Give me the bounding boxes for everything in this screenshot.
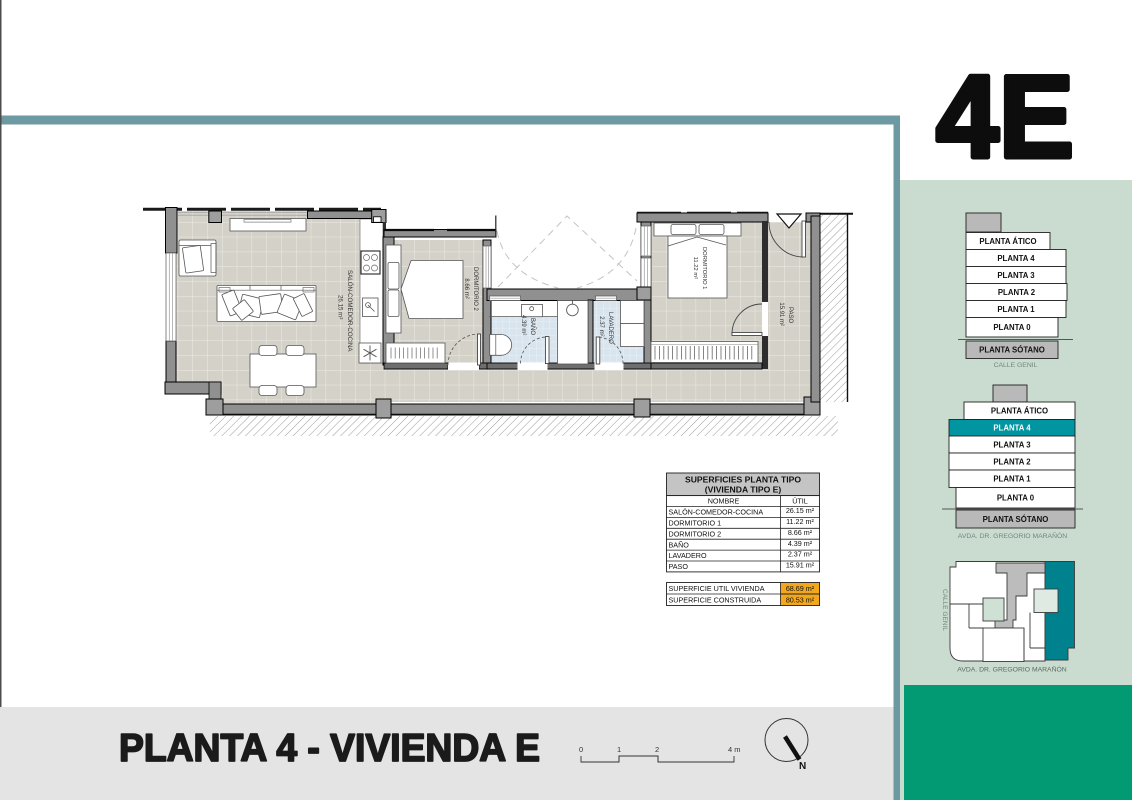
svg-text:PLANTA 1: PLANTA 1 — [997, 305, 1035, 314]
svg-text:4.39 m²: 4.39 m² — [788, 539, 813, 548]
svg-text:DORMITORIO 2: DORMITORIO 2 — [669, 529, 722, 538]
svg-text:8.66 m²: 8.66 m² — [463, 278, 469, 298]
svg-text:CALLE GENIL: CALLE GENIL — [941, 589, 948, 631]
svg-text:SALÓN-COMEDOR-COCINA: SALÓN-COMEDOR-COCINA — [669, 508, 764, 517]
svg-text:AVDA. DR. GREGORIO MARAÑÓN: AVDA. DR. GREGORIO MARAÑÓN — [958, 531, 1067, 540]
svg-text:DORMITORIO 1: DORMITORIO 1 — [669, 519, 722, 528]
svg-text:2: 2 — [655, 745, 659, 754]
svg-text:BAÑO: BAÑO — [669, 540, 690, 549]
svg-text:SUPERFICIE UTIL VIVIENDA: SUPERFICIE UTIL VIVIENDA — [669, 584, 765, 593]
svg-text:2.37 m²: 2.37 m² — [598, 316, 604, 336]
svg-text:NOMBRE: NOMBRE — [708, 497, 740, 506]
svg-text:(VIVIENDA TIPO E): (VIVIENDA TIPO E) — [705, 485, 782, 495]
svg-text:LAVADERO: LAVADERO — [607, 312, 613, 344]
svg-text:SUPERFICIE CONSTRUIDA: SUPERFICIE CONSTRUIDA — [669, 596, 762, 605]
svg-text:PASO: PASO — [787, 307, 793, 324]
svg-text:15.91 m²: 15.91 m² — [786, 561, 815, 570]
svg-text:BAÑO: BAÑO — [529, 318, 536, 335]
svg-text:4.39 m²: 4.39 m² — [520, 315, 526, 335]
svg-text:PLANTA 4 - VIVIENDA E: PLANTA 4 - VIVIENDA E — [119, 727, 540, 770]
svg-text:DORMITORIO 1: DORMITORIO 1 — [701, 247, 707, 289]
svg-text:PLANTA SÓTANO: PLANTA SÓTANO — [979, 346, 1045, 355]
svg-text:8.66 m²: 8.66 m² — [788, 528, 813, 537]
svg-text:4E: 4E — [936, 51, 1074, 182]
svg-text:PLANTA 0: PLANTA 0 — [997, 494, 1035, 503]
svg-text:PLANTA 0: PLANTA 0 — [993, 323, 1031, 332]
svg-text:11.22 m²: 11.22 m² — [786, 517, 814, 526]
svg-text:4 m: 4 m — [728, 745, 741, 754]
svg-text:PASO: PASO — [669, 562, 689, 571]
svg-text:PLANTA 2: PLANTA 2 — [998, 288, 1036, 297]
svg-text:26.15 m²: 26.15 m² — [337, 295, 344, 319]
svg-text:PLANTA 3: PLANTA 3 — [993, 440, 1031, 449]
svg-text:CALLE GENIL: CALLE GENIL — [994, 362, 1038, 369]
svg-text:ÚTIL: ÚTIL — [792, 497, 808, 506]
svg-text:N: N — [799, 761, 806, 772]
svg-text:15.91 m²: 15.91 m² — [778, 302, 784, 326]
svg-text:2.37 m²: 2.37 m² — [788, 550, 813, 559]
svg-text:PLANTA ÁTICO: PLANTA ÁTICO — [991, 407, 1048, 416]
svg-text:PLANTA 1: PLANTA 1 — [993, 475, 1031, 484]
svg-text:PLANTA 2: PLANTA 2 — [993, 457, 1031, 466]
svg-text:PLANTA SÓTANO: PLANTA SÓTANO — [983, 515, 1049, 524]
svg-text:80.53 m²: 80.53 m² — [786, 596, 815, 605]
svg-text:PLANTA 4: PLANTA 4 — [997, 254, 1035, 263]
svg-text:68.69 m²: 68.69 m² — [786, 584, 815, 593]
svg-text:SUPERFICIES PLANTA TIPO: SUPERFICIES PLANTA TIPO — [685, 475, 801, 485]
svg-text:11.22 m²: 11.22 m² — [692, 257, 698, 280]
svg-text:PLANTA 3: PLANTA 3 — [997, 271, 1035, 280]
svg-text:SALÓN-COMEDOR-COCINA: SALÓN-COMEDOR-COCINA — [346, 270, 353, 352]
svg-text:PLANTA ÁTICO: PLANTA ÁTICO — [979, 237, 1036, 246]
svg-text:LAVADERO: LAVADERO — [669, 551, 707, 560]
svg-text:26.15 m²: 26.15 m² — [786, 506, 815, 515]
svg-text:DORMITORIO 2: DORMITORIO 2 — [472, 267, 478, 312]
svg-text:1: 1 — [617, 745, 621, 754]
svg-text:0: 0 — [579, 745, 583, 754]
svg-text:PLANTA 4: PLANTA 4 — [993, 424, 1031, 433]
svg-text:AVDA. DR. GREGORIO MARAÑÓN: AVDA. DR. GREGORIO MARAÑÓN — [957, 665, 1066, 674]
